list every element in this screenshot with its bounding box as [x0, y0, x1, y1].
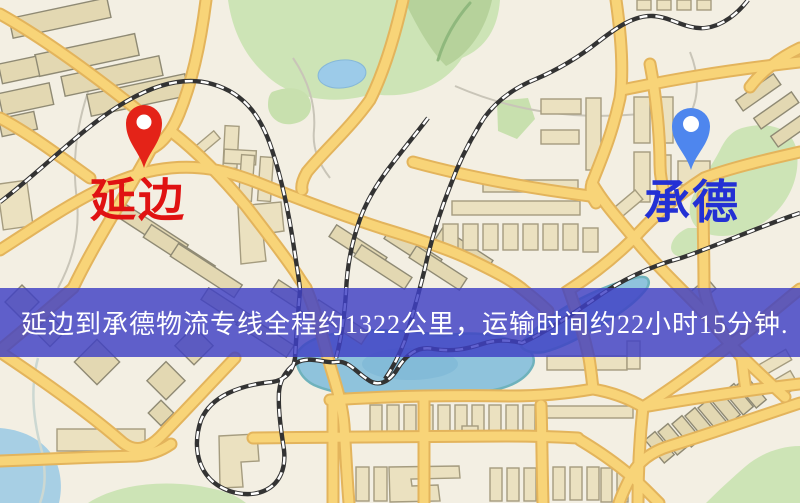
route-info-banner: 延边到承德物流专线全程约1322公里，运输时间约22小时15分钟. [0, 288, 800, 357]
map-marker-icon [666, 102, 716, 172]
origin-label: 延边 [90, 178, 186, 224]
map-canvas [0, 0, 800, 503]
route-info-text: 延边到承德物流专线全程约1322公里，运输时间约22小时15分钟. [0, 304, 789, 341]
map-screenshot: 延边 承德 延边到承德物流专线全程约1322公里，运输时间约22小时15分钟. [0, 0, 800, 503]
destination-pin[interactable] [666, 102, 716, 172]
map-marker-icon [120, 100, 168, 170]
origin-pin[interactable] [120, 100, 168, 170]
destination-label: 承德 [644, 180, 740, 226]
